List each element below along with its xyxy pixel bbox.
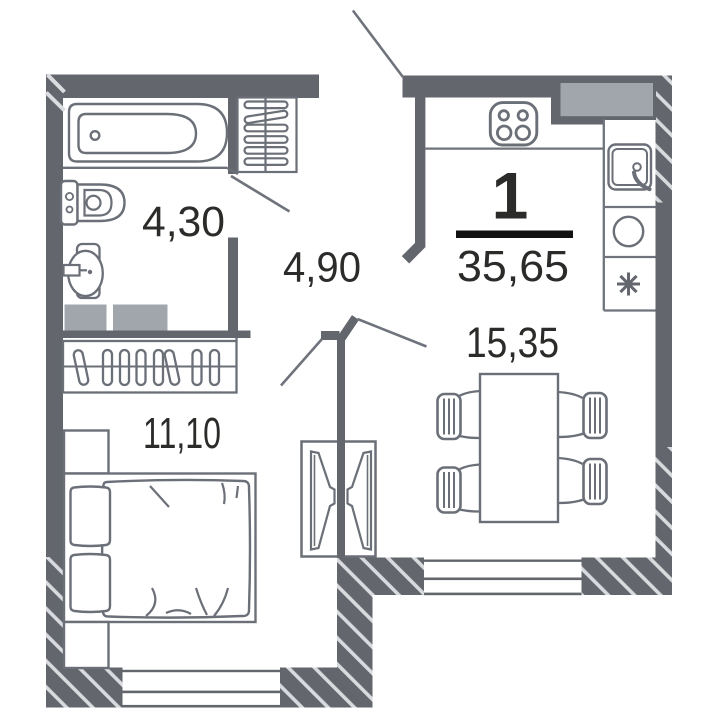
svg-text:1: 1 bbox=[492, 159, 529, 233]
svg-text:11,10: 11,10 bbox=[143, 409, 221, 458]
svg-text:4,30: 4,30 bbox=[142, 198, 225, 246]
svg-text:4,90: 4,90 bbox=[283, 244, 361, 292]
svg-text:35,65: 35,65 bbox=[457, 242, 569, 291]
svg-text:15,35: 15,35 bbox=[466, 319, 559, 367]
